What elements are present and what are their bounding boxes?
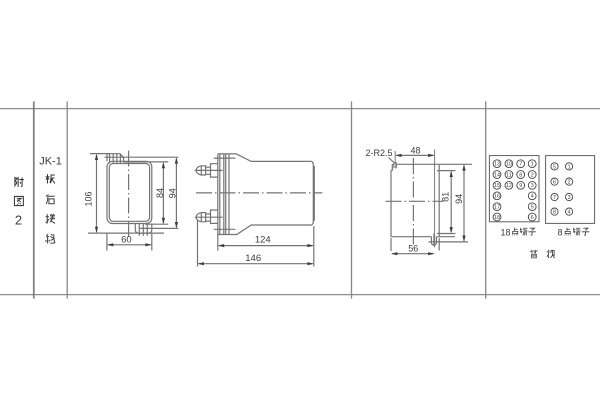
svg-text:6: 6 [553, 180, 556, 186]
svg-text:2: 2 [531, 172, 534, 178]
svg-text:8: 8 [558, 227, 563, 237]
svg-text:5: 5 [553, 164, 556, 170]
svg-text:10: 10 [506, 162, 512, 168]
svg-text:60: 60 [121, 235, 132, 246]
svg-text:17: 17 [494, 205, 500, 211]
svg-text:7: 7 [519, 162, 522, 168]
svg-text:11: 11 [506, 172, 512, 178]
svg-text:4: 4 [531, 194, 534, 200]
svg-text:13: 13 [494, 162, 500, 168]
svg-text:6: 6 [531, 215, 534, 221]
svg-text:8: 8 [519, 172, 522, 178]
svg-text:94: 94 [168, 188, 178, 198]
svg-text:124: 124 [255, 235, 271, 246]
svg-text:18: 18 [494, 215, 500, 221]
svg-text:3: 3 [531, 183, 534, 189]
svg-text:146: 146 [245, 253, 261, 264]
svg-text:8: 8 [553, 210, 556, 216]
svg-text:106: 106 [84, 191, 94, 206]
svg-text:1: 1 [531, 162, 534, 168]
svg-text:16: 16 [494, 194, 500, 200]
svg-text:1: 1 [568, 164, 571, 170]
svg-text:3: 3 [568, 195, 571, 201]
svg-text:84: 84 [155, 188, 165, 198]
svg-text:2: 2 [568, 180, 571, 186]
svg-text:2-R2.5: 2-R2.5 [365, 148, 392, 158]
svg-text:2: 2 [15, 213, 22, 228]
svg-text:48: 48 [410, 145, 420, 155]
svg-text:JK-1: JK-1 [39, 156, 62, 168]
svg-text:5: 5 [531, 205, 534, 211]
svg-text:9: 9 [519, 183, 522, 189]
svg-text:81: 81 [441, 192, 451, 202]
svg-text:7: 7 [553, 195, 556, 201]
svg-text:56: 56 [408, 243, 418, 253]
svg-text:4: 4 [568, 210, 571, 216]
svg-text:94: 94 [454, 194, 464, 204]
svg-text:15: 15 [494, 183, 500, 189]
svg-text:18: 18 [501, 227, 511, 237]
svg-text:14: 14 [494, 172, 500, 178]
svg-text:12: 12 [506, 183, 512, 189]
